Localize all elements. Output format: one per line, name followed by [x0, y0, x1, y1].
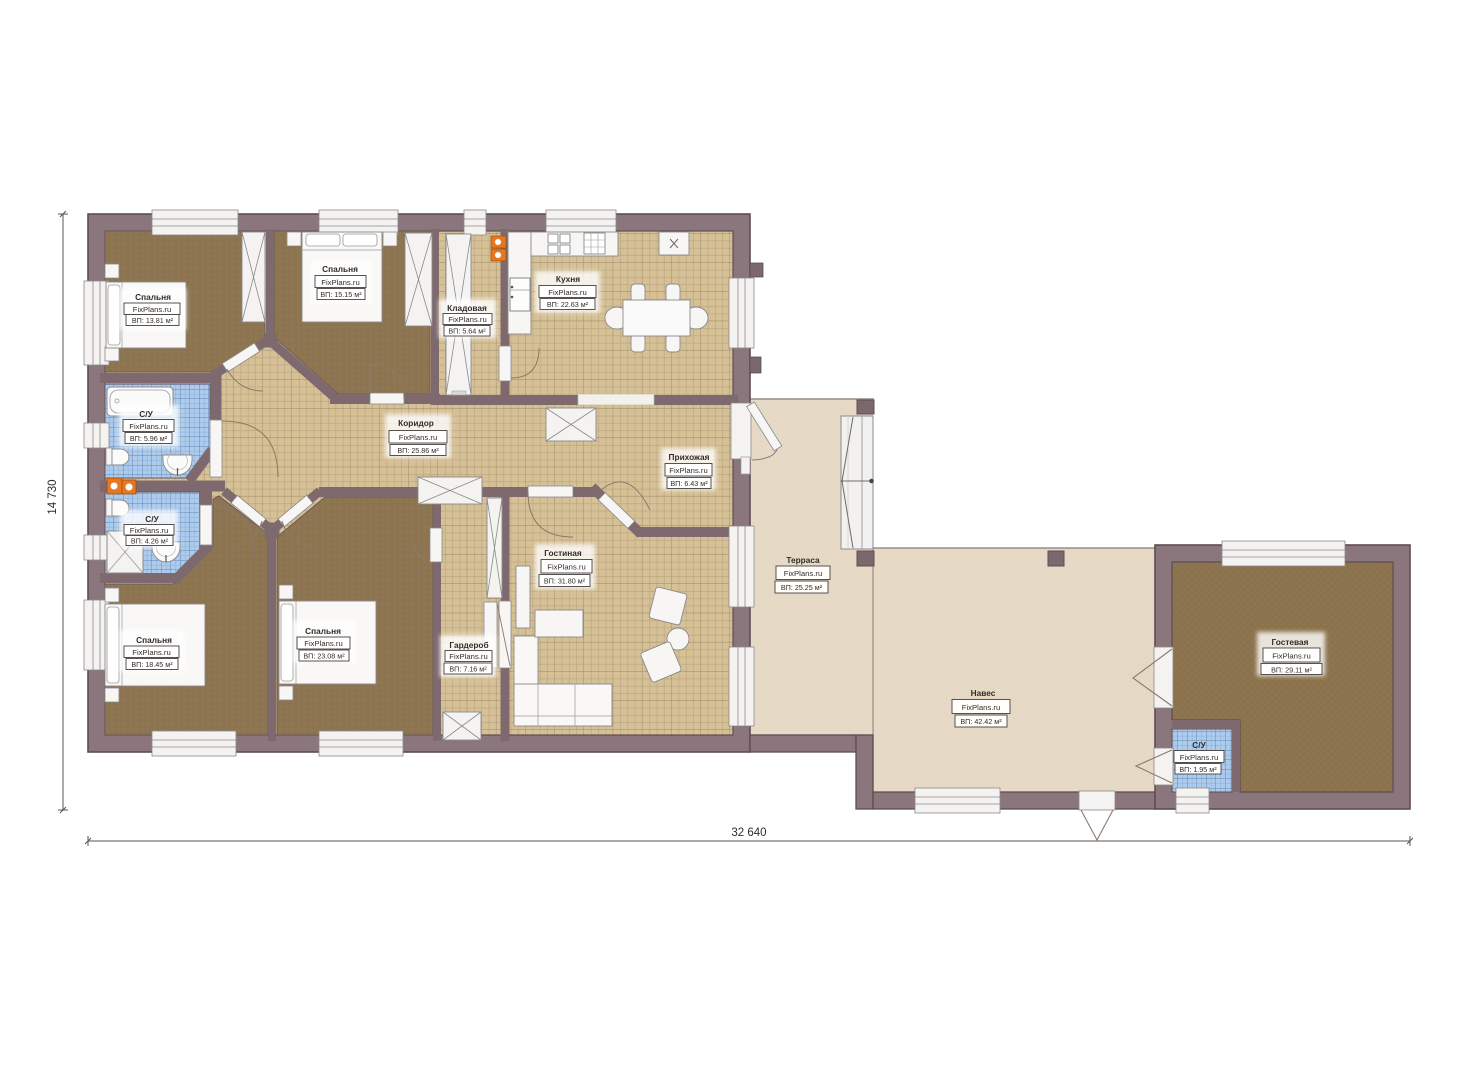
svg-text:Гардероб: Гардероб [449, 640, 488, 650]
svg-text:ВП: 23.08 м²: ВП: 23.08 м² [303, 652, 345, 661]
svg-text:Гостиная: Гостиная [544, 548, 582, 558]
svg-text:С/У: С/У [1192, 740, 1206, 750]
svg-text:С/У: С/У [139, 409, 153, 419]
svg-text:ВП: 1.95 м²: ВП: 1.95 м² [1179, 765, 1217, 774]
svg-text:ВП: 13.81 м²: ВП: 13.81 м² [132, 316, 174, 325]
svg-text:ВП: 6.43 м²: ВП: 6.43 м² [670, 479, 708, 488]
svg-text:FixPlans.ru: FixPlans.ru [547, 563, 585, 572]
svg-text:FixPlans.ru: FixPlans.ru [399, 433, 437, 442]
svg-text:Гостевая: Гостевая [1272, 637, 1309, 647]
svg-text:Терраса: Терраса [786, 555, 820, 565]
svg-text:Коридор: Коридор [398, 418, 434, 428]
svg-text:ВП: 31.80 м²: ВП: 31.80 м² [544, 577, 586, 586]
svg-text:Кухня: Кухня [556, 274, 580, 284]
svg-text:FixPlans.ru: FixPlans.ru [448, 315, 486, 324]
svg-text:FixPlans.ru: FixPlans.ru [304, 639, 342, 648]
svg-text:Спальня: Спальня [322, 264, 358, 274]
svg-text:Навес: Навес [971, 688, 996, 698]
svg-text:Кладовая: Кладовая [447, 303, 487, 313]
svg-text:ВП: 25.86 м²: ВП: 25.86 м² [397, 446, 439, 455]
svg-text:FixPlans.ru: FixPlans.ru [548, 288, 586, 297]
svg-text:FixPlans.ru: FixPlans.ru [1180, 753, 1218, 762]
svg-text:Спальня: Спальня [305, 626, 341, 636]
svg-text:Спальня: Спальня [135, 292, 171, 302]
svg-text:FixPlans.ru: FixPlans.ru [669, 466, 707, 475]
svg-text:ВП: 25.25 м²: ВП: 25.25 м² [781, 583, 823, 592]
svg-text:Спальня: Спальня [136, 635, 172, 645]
svg-text:С/У: С/У [145, 514, 159, 524]
svg-text:ВП: 29.11 м²: ВП: 29.11 м² [1271, 666, 1312, 675]
svg-text:FixPlans.ru: FixPlans.ru [129, 422, 167, 431]
svg-text:FixPlans.ru: FixPlans.ru [962, 703, 1000, 712]
svg-text:FixPlans.ru: FixPlans.ru [784, 569, 822, 578]
svg-text:ВП: 5.96 м²: ВП: 5.96 м² [130, 434, 168, 443]
svg-text:FixPlans.ru: FixPlans.ru [132, 648, 170, 657]
svg-text:ВП: 5.64 м²: ВП: 5.64 м² [448, 327, 486, 336]
svg-text:FixPlans.ru: FixPlans.ru [321, 278, 359, 287]
svg-text:ВП: 42.42 м²: ВП: 42.42 м² [960, 717, 1002, 726]
svg-text:ВП: 4.26 м²: ВП: 4.26 м² [131, 537, 169, 546]
svg-text:Прихожая: Прихожая [669, 452, 710, 462]
svg-text:FixPlans.ru: FixPlans.ru [133, 305, 171, 314]
svg-text:ВП: 7.16 м²: ВП: 7.16 м² [449, 665, 487, 674]
svg-text:ВП: 18.45 м²: ВП: 18.45 м² [131, 660, 173, 669]
svg-text:FixPlans.ru: FixPlans.ru [130, 526, 168, 535]
svg-text:FixPlans.ru: FixPlans.ru [449, 652, 487, 661]
svg-text:32 640: 32 640 [731, 827, 766, 839]
svg-text:FixPlans.ru: FixPlans.ru [1272, 652, 1310, 661]
svg-text:ВП: 15.15 м²: ВП: 15.15 м² [320, 290, 362, 299]
svg-text:ВП: 22.63 м²: ВП: 22.63 м² [547, 300, 589, 309]
svg-text:14 730: 14 730 [47, 479, 59, 514]
